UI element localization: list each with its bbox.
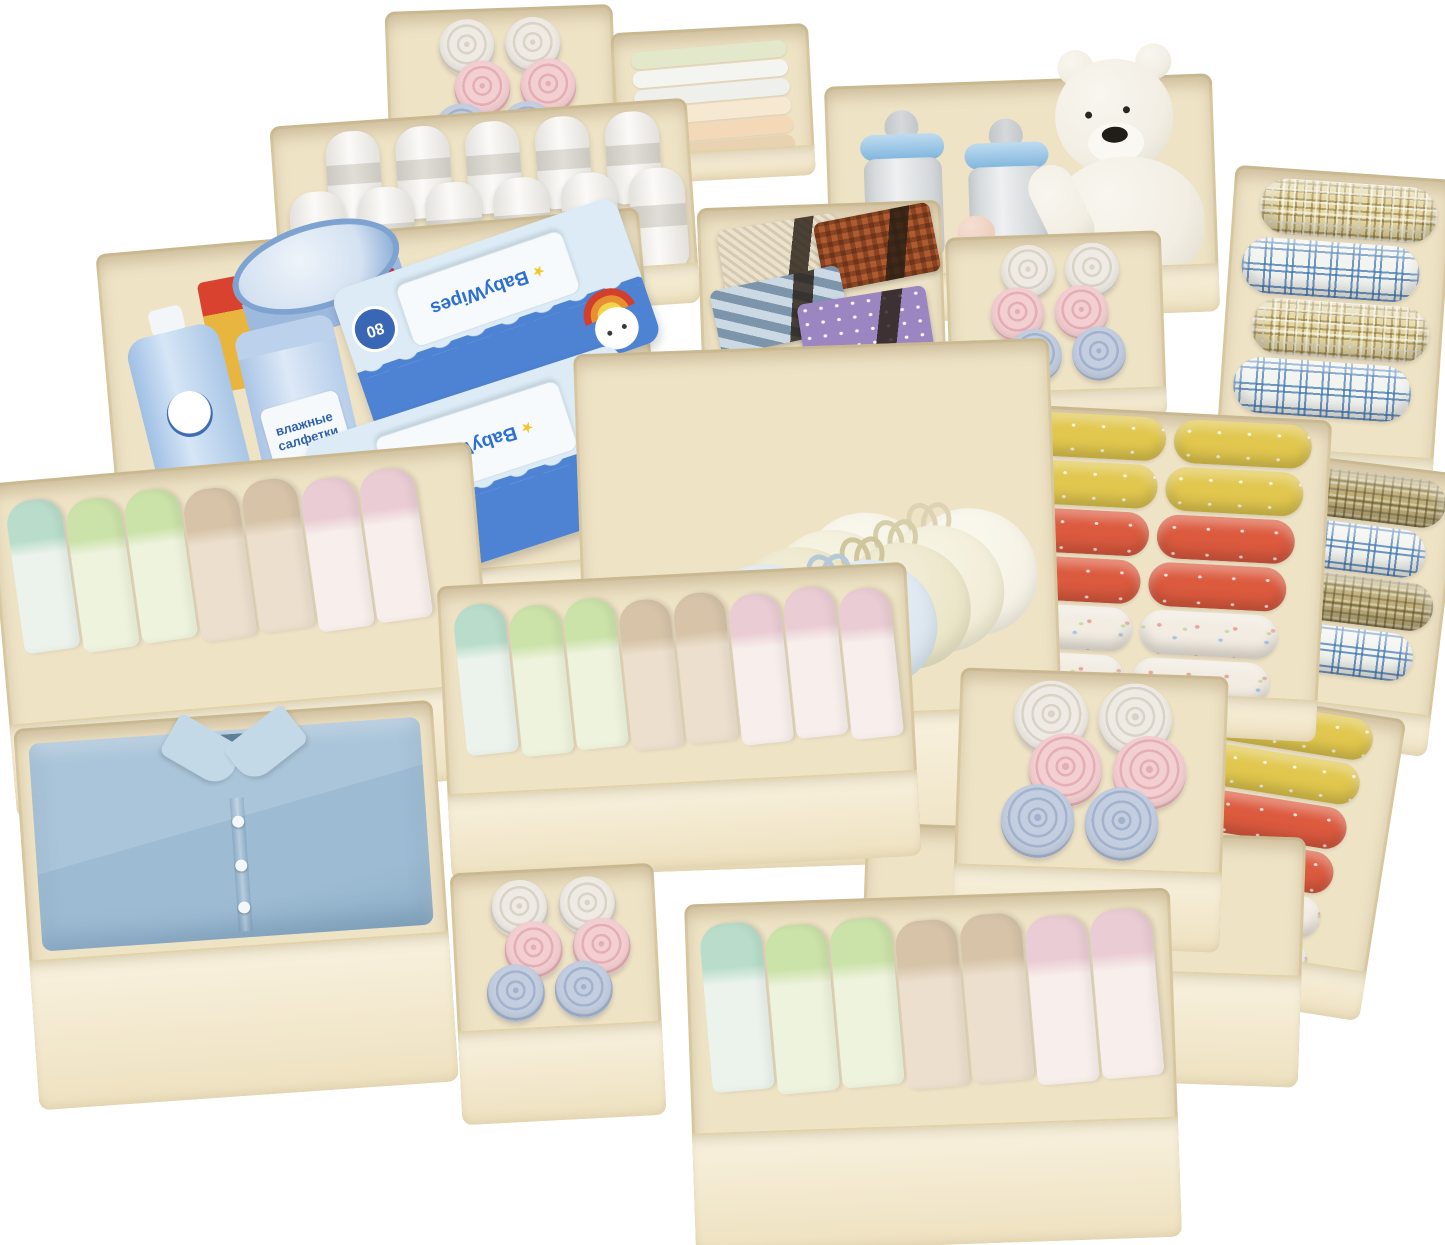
plaid-roll-blue	[1232, 355, 1413, 423]
towel-band	[606, 143, 661, 167]
rolls-grid	[489, 875, 622, 1023]
roll-row	[999, 783, 1159, 862]
roll-blue	[1083, 786, 1160, 863]
plaid-roll-yellow	[1250, 296, 1431, 364]
roll-blue	[485, 963, 546, 1024]
folded-garment-tan	[958, 911, 1034, 1084]
towel-band	[466, 153, 521, 177]
folded-garment-red	[1147, 561, 1287, 612]
folded-garment-pink	[1088, 907, 1164, 1080]
folded-shirt	[28, 717, 434, 952]
towel-band	[326, 162, 381, 186]
bin-front-wall	[29, 931, 458, 1110]
bin-rolled-underwear-bottom	[450, 863, 667, 1125]
folded-garment-print	[1139, 609, 1279, 660]
rolls-grid	[1009, 679, 1173, 862]
bin-shirt	[13, 700, 459, 1110]
folded-garment-mint	[698, 920, 774, 1093]
star-icon: ★	[518, 416, 536, 437]
folded-garment-green	[828, 916, 904, 1089]
bin-front-wall	[458, 1021, 667, 1126]
bin-folded-underwear-center	[437, 562, 922, 880]
folded-garment-tan	[894, 918, 970, 1091]
bin-folded-underwear-bottom	[684, 888, 1182, 1245]
folds-row	[703, 908, 1163, 1092]
plaid-roll-yellow	[1258, 177, 1439, 245]
bin-front-wall	[692, 1116, 1182, 1245]
towel-band	[396, 157, 451, 181]
roll-blue	[553, 959, 614, 1020]
roll-blue	[1071, 326, 1127, 382]
folded-garment-green	[764, 922, 840, 1095]
folded-garment-red	[1156, 514, 1296, 565]
roll-blue	[999, 783, 1076, 860]
star-icon: ★	[529, 261, 548, 282]
brand-label: BabyWipes	[427, 265, 531, 319]
towel-band	[536, 148, 591, 172]
folded-garment-yellow	[1164, 466, 1304, 517]
folded-garment-pink	[1024, 913, 1100, 1086]
folds-row	[456, 583, 901, 756]
folded-garment-yellow	[1173, 418, 1313, 469]
roll-row	[485, 959, 614, 1024]
product-photo: влажныесалфетки★BabyWipes80★BabyWipes80	[0, 0, 1445, 1245]
folds-row	[8, 463, 472, 654]
plaid-roll-blue	[1240, 236, 1421, 304]
